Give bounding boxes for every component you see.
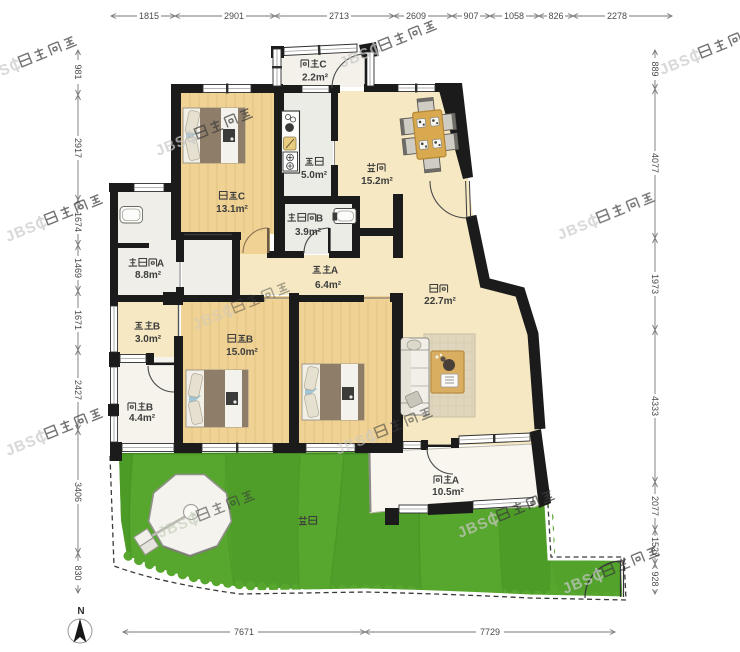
svg-text:2278: 2278 — [607, 11, 627, 21]
svg-text:B: B — [153, 322, 160, 333]
svg-text:B: B — [316, 214, 323, 225]
svg-text:N: N — [77, 606, 84, 617]
svg-text:2077: 2077 — [650, 496, 660, 516]
svg-text:6.4m²: 6.4m² — [315, 280, 342, 291]
svg-text:2609: 2609 — [406, 11, 426, 21]
svg-text:15.2m²: 15.2m² — [361, 176, 393, 187]
svg-text:2.2m²: 2.2m² — [302, 73, 329, 84]
svg-text:13.1m²: 13.1m² — [216, 204, 248, 215]
svg-text:5.0m²: 5.0m² — [301, 170, 328, 181]
svg-text:4.4m²: 4.4m² — [129, 413, 156, 424]
svg-text:981: 981 — [73, 64, 83, 79]
svg-text:1973: 1973 — [650, 274, 660, 294]
svg-text:1674: 1674 — [73, 212, 83, 232]
svg-text:15.0m²: 15.0m² — [226, 347, 258, 358]
svg-text:A: A — [157, 259, 164, 270]
svg-text:B: B — [146, 403, 153, 414]
svg-text:8.8m²: 8.8m² — [135, 270, 162, 281]
svg-text:B: B — [246, 335, 253, 346]
svg-text:10.5m²: 10.5m² — [432, 487, 464, 498]
svg-text:4077: 4077 — [650, 153, 660, 173]
svg-text:1058: 1058 — [504, 11, 524, 21]
svg-text:826: 826 — [548, 11, 563, 21]
svg-text:830: 830 — [73, 565, 83, 580]
svg-text:3406: 3406 — [73, 482, 83, 502]
svg-text:2427: 2427 — [73, 380, 83, 400]
svg-text:2713: 2713 — [329, 11, 349, 21]
svg-text:907: 907 — [463, 11, 478, 21]
svg-text:A: A — [452, 476, 459, 487]
svg-text:1815: 1815 — [139, 11, 159, 21]
svg-text:C: C — [319, 60, 326, 71]
svg-text:1469: 1469 — [73, 258, 83, 278]
svg-text:3.9m²: 3.9m² — [295, 227, 322, 238]
svg-text:C: C — [238, 192, 245, 203]
svg-text:22.7m²: 22.7m² — [424, 296, 456, 307]
svg-text:3.0m²: 3.0m² — [135, 334, 162, 345]
svg-text:2917: 2917 — [73, 138, 83, 158]
svg-text:7671: 7671 — [234, 627, 254, 637]
svg-text:928: 928 — [650, 571, 660, 586]
svg-text:A: A — [331, 266, 338, 277]
svg-text:2901: 2901 — [224, 11, 244, 21]
svg-text:1671: 1671 — [73, 310, 83, 330]
svg-text:7729: 7729 — [480, 627, 500, 637]
svg-text:4333: 4333 — [650, 396, 660, 416]
